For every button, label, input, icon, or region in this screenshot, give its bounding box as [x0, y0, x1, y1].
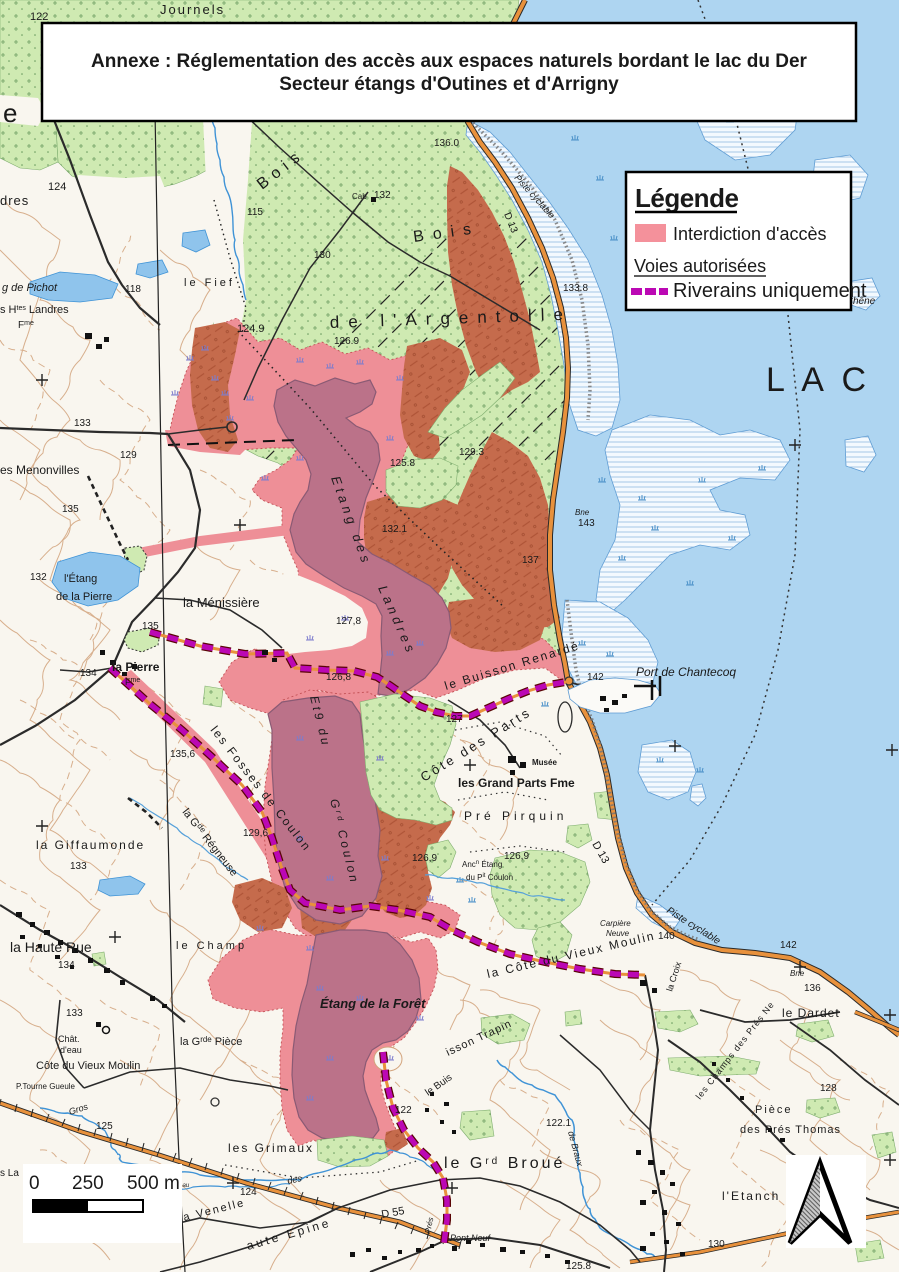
svg-text:142: 142 [587, 672, 604, 683]
svg-text:es Menonvilles: es Menonvilles [0, 463, 79, 477]
svg-text:d'eau: d'eau [60, 1045, 82, 1055]
svg-text:143: 143 [578, 518, 595, 529]
svg-text:Pré Pirquin: Pré Pirquin [464, 809, 567, 823]
svg-text:126,9: 126,9 [412, 853, 437, 864]
svg-text:Ancn Étang: Ancn Étang [462, 860, 502, 869]
svg-text:135,6: 135,6 [170, 749, 195, 760]
svg-text:125.8: 125.8 [390, 458, 415, 469]
svg-text:le Dardet: le Dardet [782, 1006, 840, 1020]
svg-text:l'Etanch: l'Etanch [722, 1189, 780, 1203]
svg-text:Voies autorisées: Voies autorisées [634, 256, 766, 276]
svg-text:P.Tourne Gueule: P.Tourne Gueule [16, 1082, 76, 1091]
svg-text:127: 127 [446, 714, 463, 725]
svg-text:500 m: 500 m [127, 1173, 180, 1194]
svg-text:122: 122 [30, 11, 48, 23]
svg-text:133: 133 [74, 418, 91, 429]
svg-text:la Giffaumonde: la Giffaumonde [36, 838, 145, 852]
svg-text:124.9: 124.9 [237, 323, 265, 335]
svg-text:les Grand Parts Fme: les Grand Parts Fme [458, 776, 575, 790]
svg-text:127,8: 127,8 [336, 616, 361, 627]
svg-text:124: 124 [48, 181, 66, 193]
svg-text:Pièce: Pièce [755, 1104, 793, 1116]
svg-text:126.9: 126.9 [334, 336, 359, 347]
svg-text:132.1: 132.1 [382, 524, 407, 535]
svg-text:135: 135 [62, 504, 79, 515]
svg-text:la Pierre: la Pierre [112, 660, 160, 674]
svg-text:122: 122 [395, 1105, 412, 1116]
svg-text:du Pit Coulon: du Pit Coulon [466, 873, 513, 882]
svg-text:122.1: 122.1 [546, 1118, 571, 1129]
svg-text:136: 136 [804, 983, 821, 994]
svg-text:les Grimaux: les Grimaux [228, 1141, 314, 1155]
svg-text:Côte du Vieux Moulin: Côte du Vieux Moulin [36, 1060, 140, 1072]
svg-text:Annexe : Réglementation des ac: Annexe : Réglementation des accès aux es… [91, 51, 808, 72]
svg-text:0: 0 [29, 1173, 40, 1194]
svg-text:126,8: 126,8 [326, 672, 351, 683]
svg-text:142: 142 [780, 940, 797, 951]
svg-text:L A C: L A C [766, 361, 871, 399]
svg-text:125: 125 [96, 1121, 113, 1132]
svg-text:136.0: 136.0 [434, 138, 459, 149]
svg-text:140: 140 [658, 931, 675, 942]
svg-text:130: 130 [314, 250, 331, 261]
svg-text:Port de Chantecoq: Port de Chantecoq [636, 665, 736, 679]
svg-text:132: 132 [30, 572, 47, 583]
svg-text:129.3: 129.3 [459, 447, 484, 458]
svg-text:Musée: Musée [532, 758, 557, 767]
svg-text:Étang de la Forêt: Étang de la Forêt [320, 996, 426, 1011]
svg-text:133: 133 [70, 861, 87, 872]
svg-text:Riverains uniquement: Riverains uniquement [673, 280, 867, 302]
svg-text:le Champ: le Champ [176, 940, 247, 952]
svg-text:Interdiction d'accès: Interdiction d'accès [673, 224, 827, 244]
svg-text:250: 250 [72, 1173, 104, 1194]
svg-text:126,9: 126,9 [504, 851, 529, 862]
svg-text:s Htes Landres: s Htes Landres [0, 304, 69, 316]
svg-text:125.8: 125.8 [566, 1261, 591, 1272]
svg-text:Secteur étangs d'Outines et d': Secteur étangs d'Outines et d'Arrigny [279, 74, 619, 95]
svg-text:dres: dres [0, 193, 29, 208]
svg-text:la Haute Rue: la Haute Rue [10, 939, 92, 955]
svg-text:s La: s La [0, 1168, 19, 1179]
svg-text:Bne: Bne [575, 508, 590, 517]
svg-text:la Grde Pièce: la Grde Pièce [180, 1035, 242, 1048]
svg-text:Chât.: Chât. [58, 1034, 80, 1044]
svg-text:115: 115 [247, 207, 263, 218]
svg-text:Pont Neuf: Pont Neuf [450, 1233, 492, 1243]
svg-text:la Ménissière: la Ménissière [183, 595, 260, 610]
svg-text:134: 134 [80, 668, 97, 679]
svg-text:l'Étang: l'Étang [64, 572, 97, 585]
svg-text:le Grd Broué: le Grd Broué [444, 1155, 565, 1172]
svg-text:des Prés Thomas: des Prés Thomas [740, 1124, 841, 1136]
svg-text:134: 134 [58, 960, 75, 971]
svg-text:g de Pichot: g de Pichot [2, 282, 58, 294]
svg-text:de la Pierre: de la Pierre [56, 591, 112, 603]
svg-text:130: 130 [708, 1239, 725, 1250]
svg-text:Bne: Bne [790, 969, 805, 978]
svg-text:129: 129 [120, 450, 137, 461]
svg-text:le Fief: le Fief [184, 277, 235, 289]
svg-text:129,6: 129,6 [243, 828, 268, 839]
svg-text:133.8: 133.8 [563, 283, 588, 294]
svg-text:133: 133 [66, 1008, 83, 1019]
svg-text:Journels: Journels [160, 2, 225, 17]
svg-text:135: 135 [142, 621, 159, 632]
svg-text:Cab: Cab [352, 192, 367, 201]
svg-text:132: 132 [374, 190, 391, 201]
svg-text:128: 128 [820, 1083, 837, 1094]
svg-text:Légende: Légende [635, 183, 738, 213]
svg-text:Carpière: Carpière [600, 919, 631, 928]
svg-text:137: 137 [522, 555, 539, 566]
svg-text:118: 118 [125, 284, 141, 295]
